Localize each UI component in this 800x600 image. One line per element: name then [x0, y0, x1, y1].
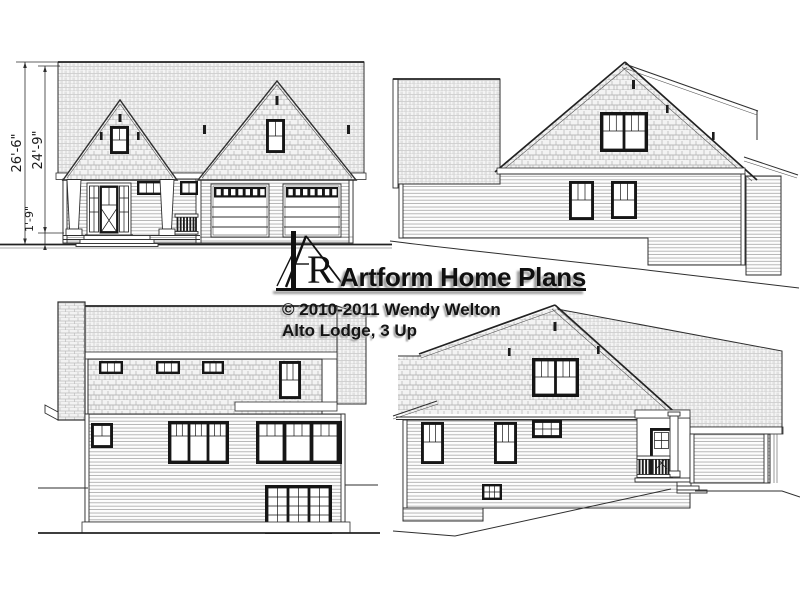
right-frieze-band: [497, 168, 745, 174]
porch-steps: [76, 236, 158, 247]
rear-clerestory-window-2: [156, 361, 180, 374]
rear-fascia-band: [85, 352, 337, 359]
rear-clerestory-window-1: [99, 361, 123, 374]
dimension-annotations: 26'-6" 24'-9" 1'-9": [10, 62, 64, 250]
porch-gable-window: [110, 126, 129, 154]
elevation-sheet: 26'-6" 24'-9" 1'-9": [0, 0, 800, 600]
left-small-window: [532, 420, 562, 438]
porch-post: [668, 412, 680, 477]
front-entry-door: [85, 183, 133, 235]
right-gable: [495, 62, 758, 181]
copyright-line: © 2010-2011 Wendy Welton: [282, 300, 501, 320]
left-rear-eave-band: [686, 427, 783, 434]
left-wall-window-1: [421, 422, 444, 464]
plan-name: Alto Lodge, 3 Up: [282, 321, 417, 341]
front-small-window-pair-2: [180, 181, 198, 195]
left-porch-railing: [637, 456, 670, 478]
brand-underline: [276, 288, 586, 291]
left-wall-window-2: [494, 422, 517, 464]
left-side-elevation: [393, 305, 800, 536]
rear-upper-window: [279, 361, 301, 399]
garage-door-left: [211, 184, 269, 237]
right-wall-window-2: [611, 181, 637, 219]
left-basement-window: [482, 484, 502, 500]
rear-small-window: [91, 423, 113, 448]
dimension-floor-height: 1'-9": [23, 206, 36, 232]
dimension-overall-height: 26'-6": [10, 133, 25, 172]
right-wall-window-1: [569, 181, 594, 220]
logo-letter: R: [307, 247, 334, 292]
right-rear-section: [744, 111, 798, 275]
rear-foundation: [82, 522, 350, 533]
rear-triple-window-center: [168, 421, 229, 464]
artform-logo: R: [276, 230, 346, 292]
right-side-elevation: [390, 62, 799, 288]
rear-bumpout-eave: [235, 402, 337, 411]
right-roof-plane: [397, 79, 500, 184]
rear-chimney: [45, 302, 85, 420]
rear-triple-window-right: [256, 421, 342, 464]
left-gable-double-window: [532, 358, 579, 397]
dimension-roof-height: 24'-9": [31, 130, 46, 169]
rear-clerestory-window-3: [202, 361, 224, 374]
garage-gable-window: [266, 119, 285, 153]
front-small-window-pair-1: [137, 181, 163, 195]
front-elevation: [0, 62, 392, 248]
right-gable-double-window: [600, 112, 648, 152]
